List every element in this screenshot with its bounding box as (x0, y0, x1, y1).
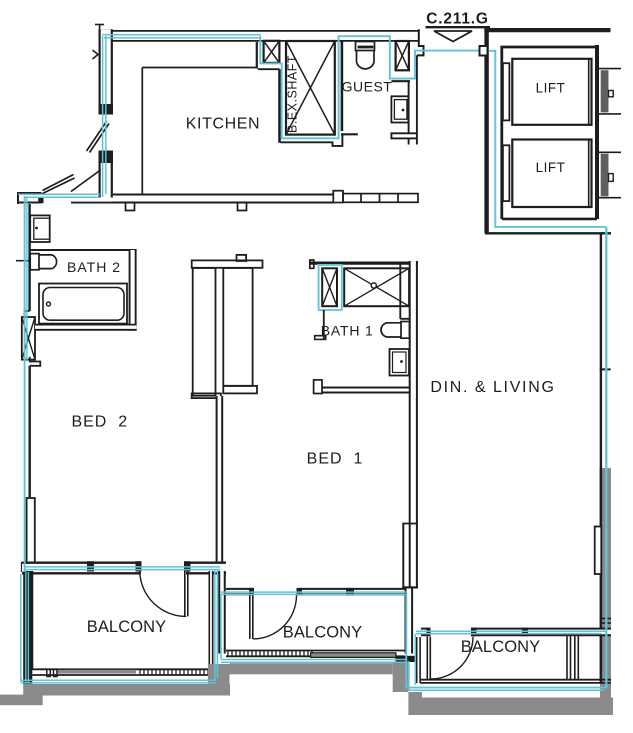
svg-text:BATH 1: BATH 1 (321, 322, 374, 338)
svg-text:B.EX.SHAFT: B.EX.SHAFT (286, 55, 300, 133)
svg-text:BALCONY: BALCONY (87, 618, 167, 636)
svg-text:C.211.G: C.211.G (426, 11, 488, 28)
svg-text:GUEST: GUEST (342, 79, 393, 95)
svg-text:LIFT: LIFT (536, 160, 566, 175)
svg-text:LIFT: LIFT (536, 81, 566, 96)
svg-text:BALCONY: BALCONY (283, 624, 363, 642)
svg-text:BED 2: BED 2 (71, 413, 128, 430)
svg-text:BED 1: BED 1 (307, 450, 364, 467)
svg-text:DIN. & LIVING: DIN. & LIVING (430, 379, 555, 396)
svg-text:BALCONY: BALCONY (461, 638, 541, 656)
svg-text:BATH 2: BATH 2 (67, 259, 121, 275)
svg-text:KITCHEN: KITCHEN (186, 116, 260, 133)
